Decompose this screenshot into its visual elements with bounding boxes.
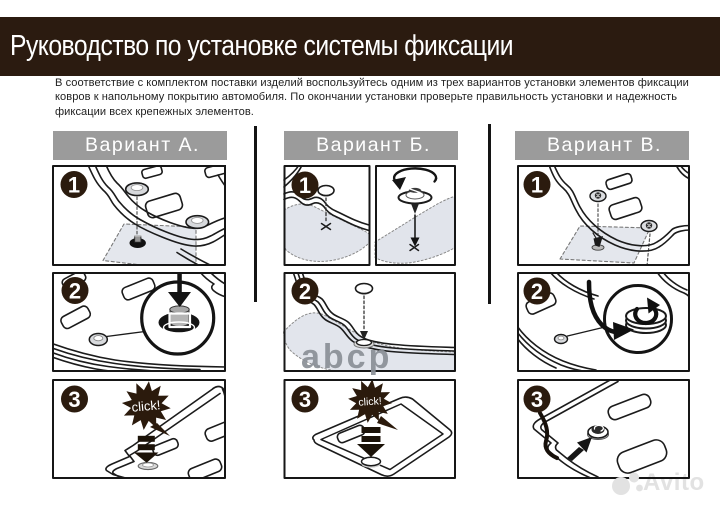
svg-text:2: 2 — [299, 279, 311, 304]
svg-text:1: 1 — [299, 173, 311, 198]
svg-text:2: 2 — [531, 279, 543, 304]
svg-text:1: 1 — [531, 173, 543, 198]
svg-text:click!: click! — [131, 397, 161, 414]
svg-text:1: 1 — [68, 173, 80, 198]
svg-text:3: 3 — [299, 387, 311, 412]
svg-text:3: 3 — [531, 387, 543, 412]
svg-text:3: 3 — [68, 387, 80, 412]
svg-text:2: 2 — [69, 279, 81, 304]
svg-text:click!: click! — [358, 395, 382, 409]
